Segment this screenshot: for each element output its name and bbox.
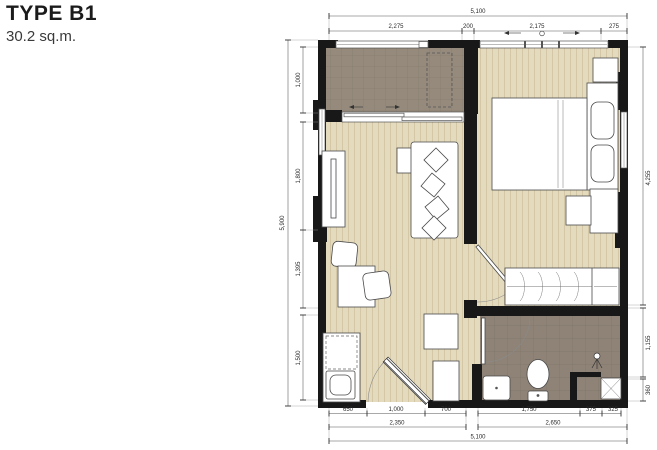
dim-label: 2,275 (388, 24, 404, 30)
dim-label: 700 (441, 407, 452, 413)
dim-label: 2,650 (545, 421, 561, 427)
floor-plan-page: TYPE B1 30.2 sq.m. (0, 0, 657, 450)
dim-label: 200 (463, 24, 474, 30)
dim-label: 4,255 (646, 170, 652, 186)
dim-label: 325 (608, 407, 619, 413)
dim-label: 1,000 (296, 72, 302, 88)
mattress (492, 98, 587, 190)
tv-console (322, 151, 345, 227)
nightstand (590, 189, 618, 233)
cabinet (424, 314, 458, 349)
dim-label: 5,100 (470, 9, 486, 15)
dim-label: 1,750 (521, 407, 537, 413)
cabinet (433, 361, 459, 401)
window-catch-icon (419, 42, 428, 48)
dim-label: 2,175 (529, 24, 545, 30)
dim-label: 360 (646, 384, 652, 395)
dim-label: 1,000 (388, 407, 404, 413)
dim-label: 1,500 (296, 350, 302, 366)
dim-label: 5,100 (470, 435, 486, 441)
dim-label: 275 (609, 24, 620, 30)
tv-icon (331, 159, 336, 218)
floor-plan-canvas: 5,100 2,275 200 2,175 275 5,900 (0, 0, 657, 450)
dim-label: 1,395 (296, 261, 302, 277)
pillow (591, 102, 614, 139)
dim-label: 2,350 (389, 421, 405, 427)
balcony-floor (326, 47, 465, 112)
toilet-icon (527, 360, 549, 402)
dim-label: 1,155 (646, 335, 652, 351)
dining-chair (362, 270, 392, 300)
kitchen-counter (323, 333, 360, 402)
window-direction-arrows (504, 31, 580, 36)
bed-shelf (593, 58, 618, 82)
nightstand (566, 196, 591, 225)
dining-chair (331, 241, 358, 268)
dim-label: 650 (343, 407, 354, 413)
dim-label: 375 (586, 407, 597, 413)
pillow (591, 145, 614, 182)
wardrobe (505, 268, 619, 305)
dim-label: 5,900 (280, 215, 286, 231)
shower-tray (601, 378, 621, 399)
dim-label: 1,800 (296, 168, 302, 184)
